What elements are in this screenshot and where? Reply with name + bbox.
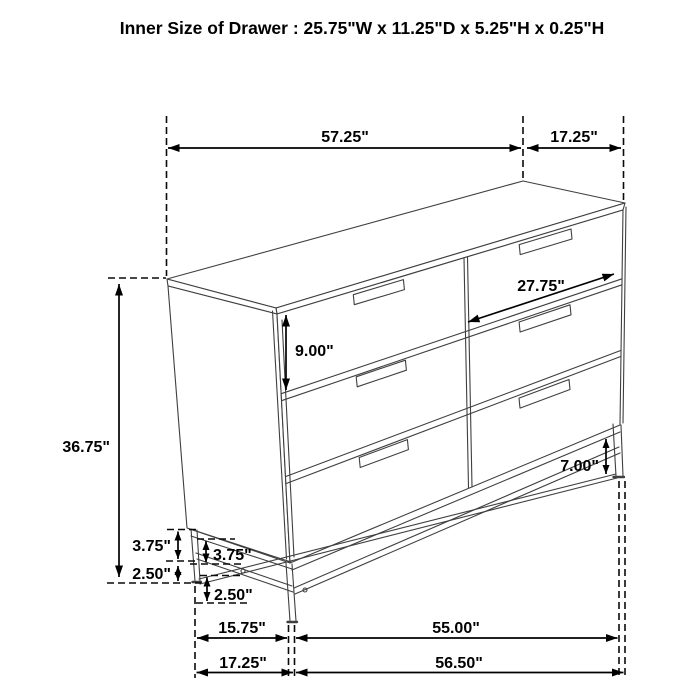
front-left-leg [286, 563, 296, 621]
label-frame-outer: 3.75" [132, 538, 171, 555]
label-floor-width: 56.50" [435, 655, 483, 672]
dresser-left-side-panel [168, 286, 290, 563]
front-right-leg [613, 424, 623, 476]
label-drawer-width: 27.75" [517, 278, 565, 295]
right-edge-line [623, 207, 626, 423]
label-floor-depth: 17.25" [219, 655, 267, 672]
label-drawer-height: 9.00" [295, 343, 334, 360]
label-top-width: 57.25" [321, 129, 369, 146]
label-leg-outer: 2.50" [132, 566, 171, 583]
label-top-depth: 17.25" [550, 129, 598, 146]
label-right-leg: 7.00" [560, 458, 599, 475]
label-base-side: 15.75" [218, 620, 266, 637]
label-base-front: 55.00" [432, 620, 480, 637]
label-leg-inner: 2.50" [214, 587, 253, 604]
dresser-diagram: Inner Size of Drawer : 25.75"W x 11.25"D… [0, 0, 700, 700]
label-frame-inner: 3.75" [213, 547, 252, 564]
label-overall-height: 36.75" [62, 439, 110, 456]
page-title: Inner Size of Drawer : 25.75"W x 11.25"D… [120, 18, 605, 38]
